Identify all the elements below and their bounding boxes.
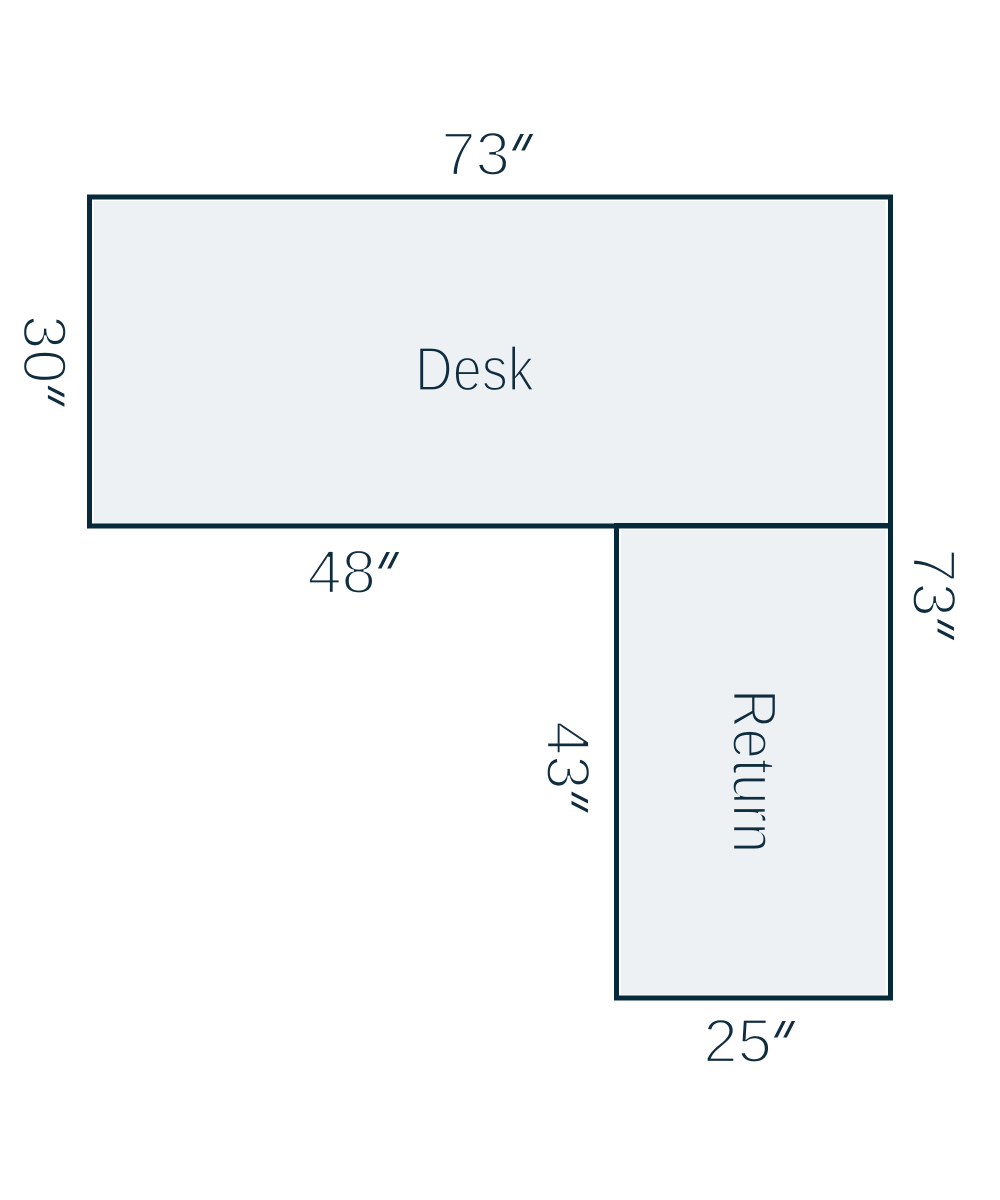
svg-text:73: 73: [899, 548, 968, 616]
svg-text:73: 73: [441, 120, 509, 189]
svg-text:48: 48: [307, 538, 375, 607]
svg-text:43: 43: [533, 721, 602, 789]
svg-text:30: 30: [9, 315, 78, 383]
svg-text:25: 25: [703, 1007, 771, 1076]
svg-text:Desk: Desk: [415, 336, 535, 405]
svg-text:Return: Return: [719, 689, 788, 853]
